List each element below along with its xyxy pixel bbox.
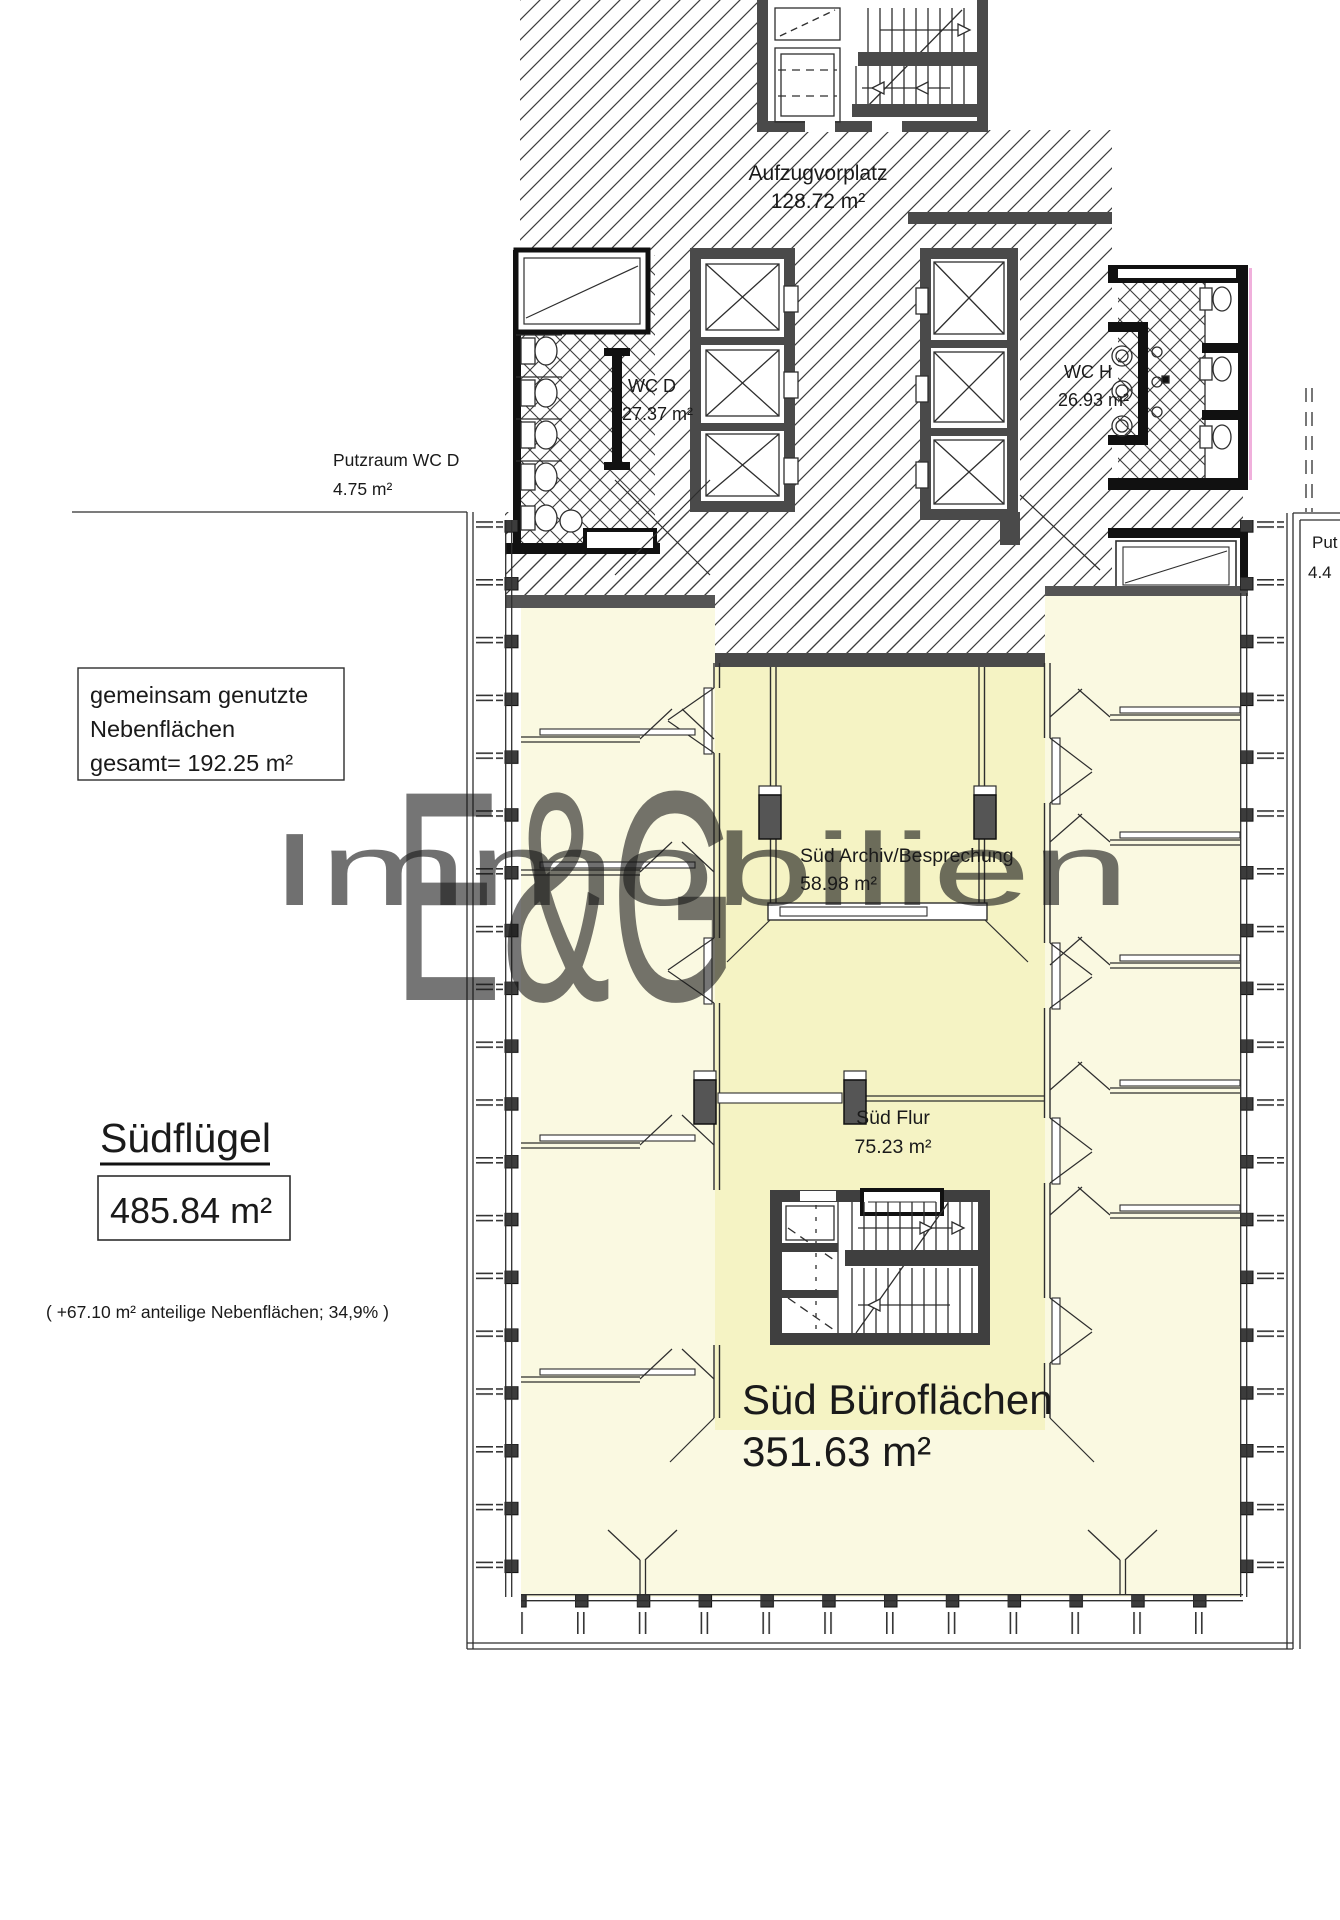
wing-title: Südflügel <box>100 1115 271 1161</box>
label-archiv-area: 58.98 m² <box>800 873 877 895</box>
label-aufzugvorplatz: Aufzugvorplatz <box>749 162 888 185</box>
floorplan-drawing: Immobilien E&G Aufzugvorplatz 128.72 m² … <box>0 0 1340 1920</box>
label-buero-area: 351.63 m² <box>742 1428 931 1475</box>
wall-right-office-top <box>1045 586 1248 596</box>
top-stairwell <box>757 0 988 132</box>
label-buero: Süd Büroflächen <box>742 1376 1053 1423</box>
label-putzraum-left-area: 4.75 m² <box>333 479 392 499</box>
label-wc-d-area: 27.37 m² <box>622 404 693 424</box>
label-flur: Süd Flur <box>856 1107 930 1129</box>
label-putzraum-right-area: 4.4 <box>1308 563 1332 582</box>
floorplan-page: Immobilien E&G Aufzugvorplatz 128.72 m² … <box>0 0 1340 1920</box>
wing-summary: Südflügel 485.84 m² ( +67.10 m² anteilig… <box>46 1115 389 1322</box>
shared-areas-note: gemeinsam genutzte Nebenflächen gesamt= … <box>78 668 344 780</box>
label-wc-d: WC D <box>628 376 676 396</box>
label-flur-area: 75.23 m² <box>855 1136 932 1158</box>
shared-note-line1: gemeinsam genutzte <box>90 682 308 708</box>
wing-note: ( +67.10 m² anteilige Nebenflächen; 34,9… <box>46 1302 389 1322</box>
watermark-eg: E&G <box>393 728 738 1064</box>
label-archiv: Süd Archiv/Besprechung <box>800 845 1014 867</box>
wc-h-room <box>1108 265 1252 490</box>
wing-area: 485.84 m² <box>110 1190 272 1231</box>
label-putzraum-right: Put <box>1312 533 1338 552</box>
central-stairwell <box>770 1190 990 1345</box>
label-wc-h-area: 26.93 m² <box>1058 390 1129 410</box>
service-room-top-right <box>1108 528 1248 596</box>
elevator-bank-left <box>690 248 798 512</box>
label-wc-h: WC H <box>1064 362 1112 382</box>
wc-d-room <box>505 250 660 554</box>
label-putzraum-left: Putzraum WC D <box>333 450 459 470</box>
shared-note-line2: Nebenflächen <box>90 716 235 742</box>
shared-note-line3: gesamt= 192.25 m² <box>90 750 293 776</box>
wall-left-office-top <box>505 595 715 608</box>
label-aufzugvorplatz-area: 128.72 m² <box>771 190 866 213</box>
elevator-bank-right <box>916 248 1020 545</box>
accent-pink-line <box>1249 268 1252 480</box>
wall-top-right <box>908 212 1112 224</box>
